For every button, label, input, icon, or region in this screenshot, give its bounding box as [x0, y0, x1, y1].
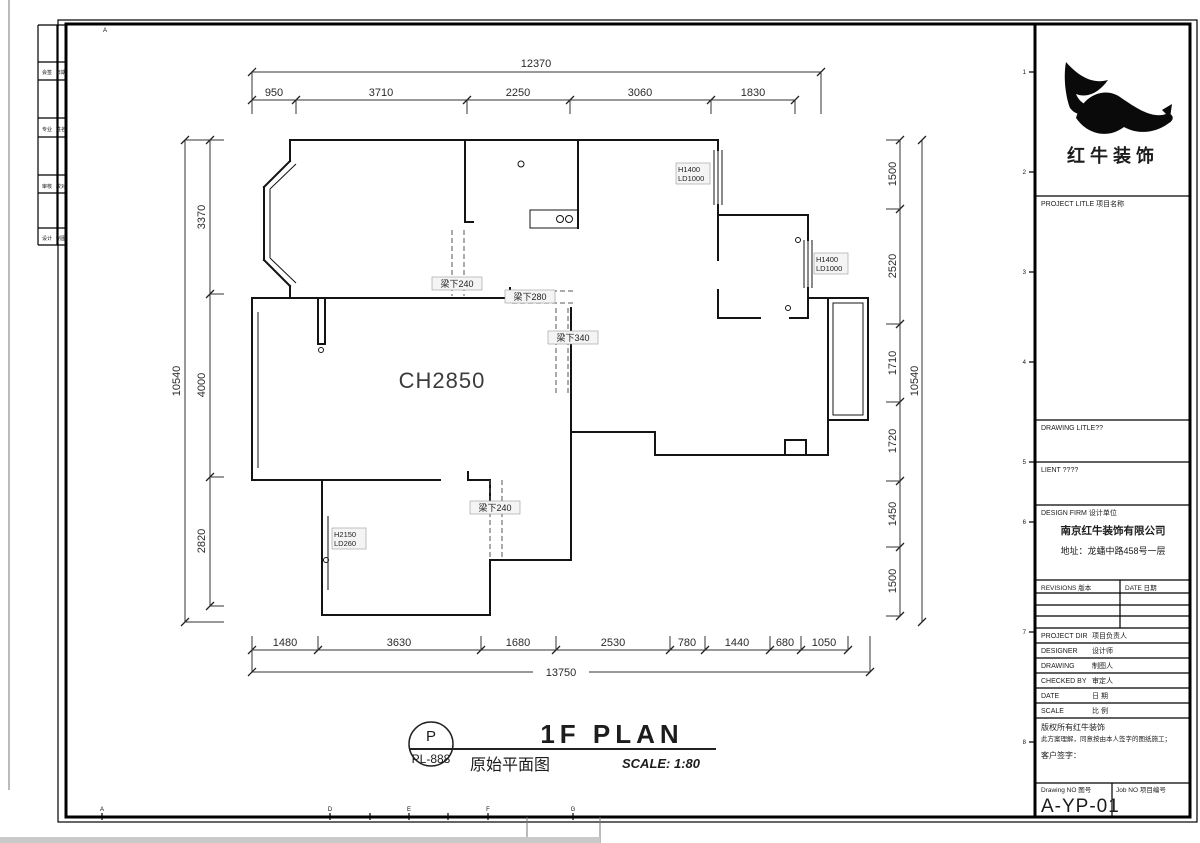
window-tag-height: H1400	[678, 165, 700, 174]
dim-left-seg: 4000	[196, 373, 208, 397]
window-tag-sill: LD1000	[678, 174, 704, 183]
dim-bottom-seg: 680	[776, 637, 794, 649]
row-label-zh: 设计师	[1092, 646, 1113, 655]
plan-title-area: P PL-888 1F PLAN 原始平面图 SCALE: 1:80	[409, 719, 716, 774]
grid-letter: G	[571, 807, 576, 813]
edge-number: 8	[1023, 740, 1027, 746]
dim-right-seg: 1500	[887, 162, 899, 186]
dim-bottom-seg: 1050	[812, 637, 836, 649]
design-firm-label: DESIGN FIRM 设计单位	[1041, 508, 1117, 517]
window-tags: H1400 LD1000 H1400 LD1000 H2150 LD260	[332, 163, 848, 549]
grid-letter: A	[100, 807, 104, 813]
edge-number: 4	[1023, 360, 1027, 366]
dim-bottom: 1480 3630 1680 2530 780 1440 680 1050 13…	[248, 636, 874, 679]
window-tag-sill: LD260	[334, 539, 356, 548]
signature-strip: 会签 日期 专业 姓名 审核 校对 设计 制图	[38, 25, 66, 245]
ceiling-height-label: CH2850	[399, 368, 486, 393]
client-label: LIENT ????	[1041, 467, 1078, 474]
dim-left-overall: 10540	[171, 366, 183, 397]
dim-bottom-seg: 3630	[387, 637, 411, 649]
row-label-en: DESIGNER	[1041, 648, 1078, 655]
dim-top-seg: 3060	[628, 87, 652, 99]
floor-plan-canvas: A A D E F G 会签 日期 专业 姓名 审核 校对 设计 制图	[0, 0, 1200, 843]
strip-cell: 日期	[56, 70, 66, 76]
date-col-label: DATE 日期	[1125, 584, 1157, 592]
dim-top-seg: 950	[265, 87, 283, 99]
edge-number: 2	[1023, 170, 1027, 176]
dim-bottom-seg: 2530	[601, 637, 625, 649]
window-tag-sill: LD1000	[816, 264, 842, 273]
drawing-sheet: A A D E F G 会签 日期 专业 姓名 审核 校对 设计 制图	[0, 0, 1200, 843]
beam-label: 梁下340	[556, 332, 589, 343]
row-label-en: CHECKED BY	[1041, 678, 1087, 685]
dim-left: 10540 3370 4000 2820	[171, 136, 224, 626]
dim-bottom-seg: 780	[678, 637, 696, 649]
brand-name: 红牛装饰	[1067, 145, 1159, 166]
strip-cell: 制图	[56, 235, 66, 242]
firm-name: 南京红牛装饰有限公司	[1061, 524, 1166, 537]
project-title-label: PROJECT LITLE 项目名称	[1041, 199, 1124, 208]
dim-bottom-seg: 1680	[506, 637, 530, 649]
edge-number: 5	[1023, 460, 1027, 466]
dim-top-overall: 12370	[521, 58, 552, 70]
window-tag-height: H2150	[334, 530, 356, 539]
copyright-line1: 版权所有红牛装饰	[1041, 722, 1105, 732]
grid-letter: F	[486, 807, 490, 813]
revisions-label: REVISIONS 版本	[1041, 583, 1092, 592]
strip-cell: 审核	[42, 183, 52, 190]
row-label-en: SCALE	[1041, 708, 1064, 715]
plan-subtitle: 原始平面图	[470, 756, 550, 774]
dim-bottom-overall: 13750	[546, 667, 577, 679]
strip-cell: 专业	[42, 126, 52, 133]
strip-cell: 姓名	[56, 126, 66, 133]
dim-right: 1500 2520 1710 1720 1450 1500 10540	[886, 136, 926, 626]
grid-letter: D	[328, 807, 333, 813]
row-label-zh: 日 期	[1092, 692, 1108, 700]
dim-bottom-seg: 1440	[725, 637, 749, 649]
row-label-zh: 制图人	[1092, 661, 1113, 670]
title-block: 红牛装饰 PROJECT LITLE 项目名称 DRAWING LITLE?? …	[1023, 62, 1190, 817]
dim-top-seg: 2250	[506, 87, 530, 99]
strip-cell: 设计	[42, 235, 52, 242]
paper-edge-shadow	[0, 837, 600, 843]
grid-letter-top: A	[103, 28, 107, 34]
dim-top-seg: 3710	[369, 87, 393, 99]
dim-left-seg: 3370	[196, 205, 208, 229]
row-label-zh: 比 例	[1092, 706, 1108, 715]
stamp-letter: P	[426, 728, 436, 745]
beam-label: 梁下240	[478, 502, 511, 513]
dim-right-overall: 10540	[909, 366, 921, 397]
strip-cell: 会签	[42, 69, 52, 76]
dim-right-seg: 1710	[887, 351, 899, 375]
dim-right-seg: 1450	[887, 502, 899, 526]
firm-address: 地址：龙蟠中路458号一层	[1060, 545, 1165, 556]
beam-label: 梁下240	[440, 278, 473, 289]
copyright-line2: 此方案理解，同意按由本人签字的图纸施工；	[1041, 734, 1171, 743]
dim-right-seg: 1720	[887, 429, 899, 453]
dim-right-seg: 2520	[887, 254, 899, 278]
dim-top: 12370 950 3710 2250 3060 1830	[248, 58, 825, 114]
edge-number: 6	[1023, 520, 1027, 526]
window-tag-height: H1400	[816, 255, 838, 264]
edge-number: 3	[1023, 270, 1027, 276]
beam-lines: 梁下240 梁下280 梁下340 梁下240	[432, 230, 598, 558]
sheet-frame: A A D E F G	[0, 0, 1197, 843]
row-label-en: DRAWING	[1041, 663, 1075, 670]
sheet-number: A-YP-01	[1041, 796, 1120, 817]
edge-number: 7	[1023, 630, 1027, 636]
drawing-no-label: Drawing NO 图号	[1041, 786, 1092, 794]
job-no-label: Job NO 项目编号	[1116, 785, 1166, 794]
stamp-code: PL-888	[412, 752, 451, 766]
row-label-en: PROJECT DIR	[1041, 633, 1088, 640]
client-sign-label: 客户签字：	[1041, 750, 1081, 760]
drawing-title-label: DRAWING LITLE??	[1041, 425, 1103, 432]
row-label-zh: 审定人	[1092, 676, 1113, 685]
grid-letter: E	[407, 807, 411, 813]
row-label-en: DATE	[1041, 693, 1059, 700]
beam-label: 梁下280	[513, 291, 546, 302]
edge-number: 1	[1023, 70, 1027, 76]
dim-right-seg: 1500	[887, 569, 899, 593]
plan-scale: SCALE: 1:80	[622, 756, 701, 771]
row-label-zh: 项目负责人	[1092, 631, 1127, 640]
brand-logo-icon	[1065, 62, 1173, 134]
dim-top-seg: 1830	[741, 87, 765, 99]
plan-title: 1F PLAN	[540, 719, 683, 749]
dim-left-seg: 2820	[196, 529, 208, 553]
dim-bottom-seg: 1480	[273, 637, 297, 649]
strip-cell: 校对	[56, 183, 66, 190]
